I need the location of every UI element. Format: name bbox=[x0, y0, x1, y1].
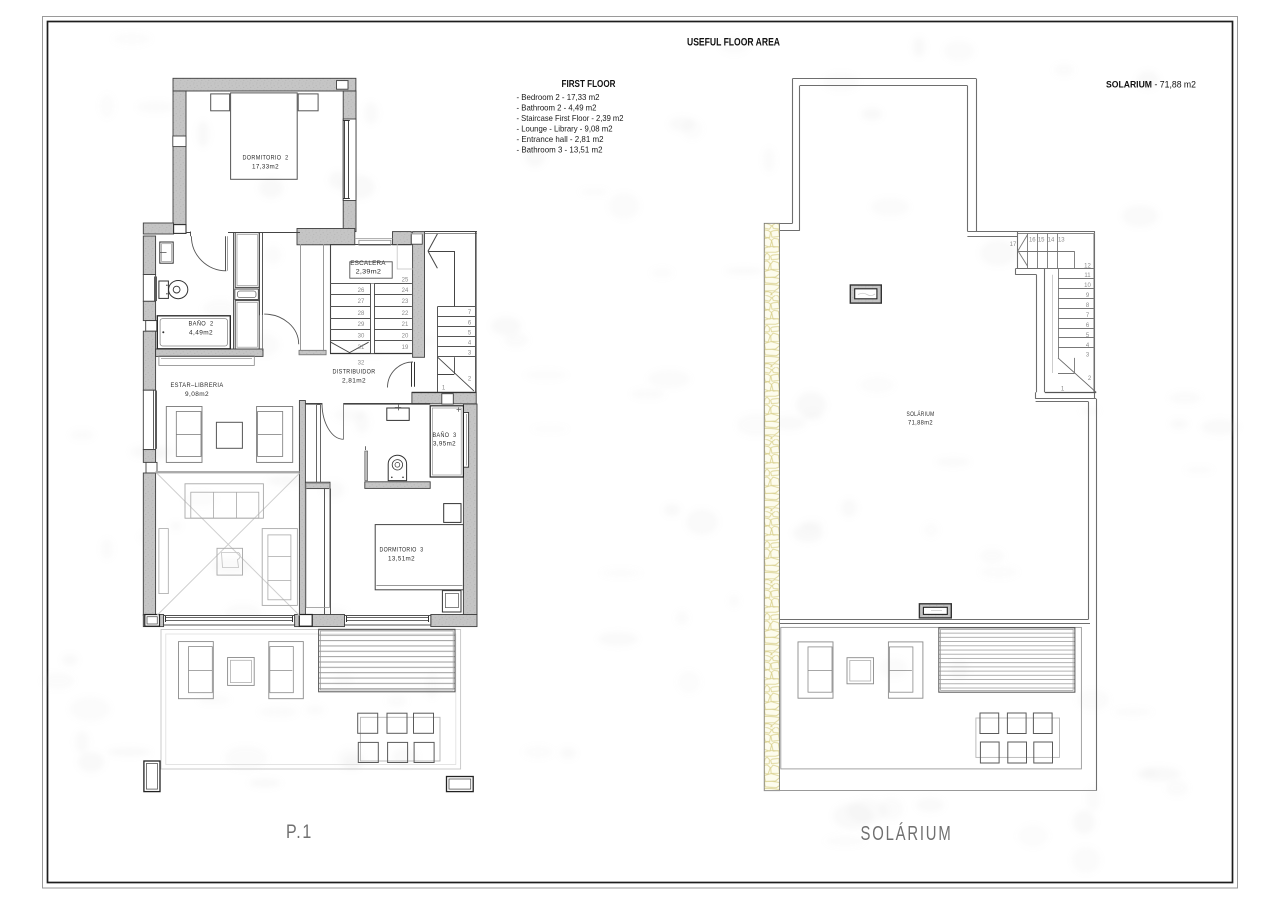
svg-text:27: 27 bbox=[358, 299, 365, 305]
svg-text:30: 30 bbox=[358, 334, 365, 340]
svg-text:SOLARIUM: SOLARIUM bbox=[1106, 80, 1152, 91]
svg-text:26: 26 bbox=[358, 288, 365, 294]
svg-text:7: 7 bbox=[468, 310, 472, 316]
svg-text:DORMITORIO 2: DORMITORIO 2 bbox=[243, 155, 289, 162]
svg-text:BAÑO 3: BAÑO 3 bbox=[433, 430, 457, 439]
svg-text:- 71,88 m2: - 71,88 m2 bbox=[1155, 80, 1197, 91]
svg-text:3,95m2: 3,95m2 bbox=[433, 441, 456, 448]
svg-text:- Lounge - Library - 9,08 m2: - Lounge - Library - 9,08 m2 bbox=[517, 124, 613, 134]
svg-text:17: 17 bbox=[1010, 242, 1017, 248]
svg-text:SOLÁRIUM: SOLÁRIUM bbox=[907, 409, 935, 418]
svg-text:ESCALERA: ESCALERA bbox=[350, 260, 386, 267]
svg-text:USEFUL FLOOR AREA: USEFUL FLOOR AREA bbox=[687, 37, 780, 49]
svg-text:3: 3 bbox=[468, 351, 472, 357]
svg-text:BAÑO 2: BAÑO 2 bbox=[189, 319, 214, 328]
svg-text:2,81m2: 2,81m2 bbox=[342, 377, 366, 384]
svg-text:- Entrance hall - 2,81 m2: - Entrance hall - 2,81 m2 bbox=[517, 134, 604, 144]
svg-text:5: 5 bbox=[1086, 333, 1090, 339]
svg-text:17,33m2: 17,33m2 bbox=[252, 164, 279, 171]
svg-text:6: 6 bbox=[468, 320, 472, 326]
svg-text:11: 11 bbox=[1084, 273, 1091, 279]
svg-text:29: 29 bbox=[358, 322, 365, 328]
svg-text:SOLÁRIUM: SOLÁRIUM bbox=[861, 822, 953, 845]
svg-text:32: 32 bbox=[358, 360, 365, 366]
svg-text:6: 6 bbox=[1086, 323, 1090, 329]
svg-text:31: 31 bbox=[358, 345, 365, 351]
svg-text:22: 22 bbox=[402, 311, 409, 317]
svg-text:1: 1 bbox=[442, 385, 446, 391]
svg-text:19: 19 bbox=[402, 345, 409, 351]
svg-text:25: 25 bbox=[402, 278, 409, 284]
svg-text:4: 4 bbox=[468, 341, 472, 347]
svg-text:DORMITORIO 3: DORMITORIO 3 bbox=[380, 547, 424, 554]
svg-text:24: 24 bbox=[402, 288, 409, 294]
svg-text:1: 1 bbox=[1061, 387, 1065, 393]
svg-text:ESTAR–LIBRERIA: ESTAR–LIBRERIA bbox=[171, 382, 224, 389]
svg-text:14: 14 bbox=[1048, 238, 1055, 244]
svg-text:20: 20 bbox=[402, 334, 409, 340]
svg-text:12: 12 bbox=[1084, 263, 1091, 269]
svg-text:- Bathroom 3 - 13,51 m2: - Bathroom 3 - 13,51 m2 bbox=[517, 145, 603, 155]
svg-text:P.1: P.1 bbox=[286, 822, 313, 843]
svg-text:10: 10 bbox=[1084, 283, 1091, 289]
svg-text:13: 13 bbox=[1058, 238, 1065, 244]
svg-text:23: 23 bbox=[402, 299, 409, 305]
svg-text:15: 15 bbox=[1038, 238, 1045, 244]
svg-text:- Bedroom 2 - 17,33 m2: - Bedroom 2 - 17,33 m2 bbox=[517, 92, 600, 102]
svg-text:2: 2 bbox=[468, 377, 472, 383]
svg-text:5: 5 bbox=[468, 330, 472, 336]
svg-text:21: 21 bbox=[402, 322, 409, 328]
svg-text:9,08m2: 9,08m2 bbox=[185, 391, 209, 398]
svg-text:71,88m2: 71,88m2 bbox=[908, 420, 933, 427]
svg-text:FIRST FLOOR: FIRST FLOOR bbox=[562, 79, 617, 90]
svg-text:13,51m2: 13,51m2 bbox=[388, 556, 415, 563]
svg-text:28: 28 bbox=[358, 311, 365, 317]
svg-text:DISTRIBUIDOR: DISTRIBUIDOR bbox=[333, 368, 376, 375]
svg-text:3: 3 bbox=[1086, 353, 1090, 359]
svg-text:4,49m2: 4,49m2 bbox=[189, 330, 213, 337]
svg-text:16: 16 bbox=[1029, 238, 1036, 244]
svg-text:- Staircase First Floor - 2,39: - Staircase First Floor - 2,39 m2 bbox=[517, 113, 624, 123]
svg-text:- Bathroom 2 - 4,49 m2: - Bathroom 2 - 4,49 m2 bbox=[517, 103, 597, 113]
svg-text:2,39m2: 2,39m2 bbox=[356, 269, 382, 276]
svg-text:2: 2 bbox=[1088, 376, 1092, 382]
